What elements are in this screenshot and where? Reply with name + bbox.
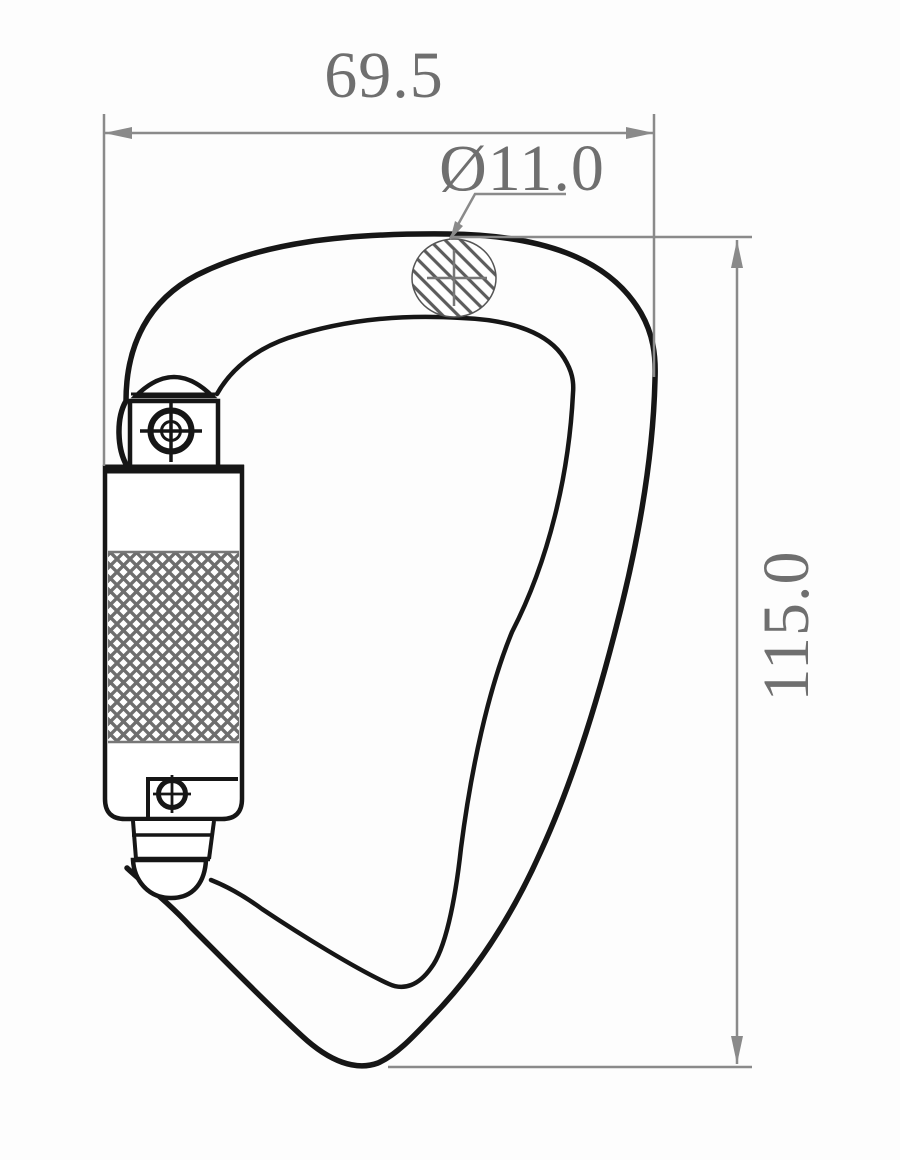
carabiner-drawing-canvas: 69.5 Ø11.0 115.0 <box>0 0 900 1160</box>
gate-collar <box>133 821 214 859</box>
width-dimension-label: 69.5 <box>324 39 444 112</box>
width-arrow-left <box>104 127 132 139</box>
dimension-texts: 69.5 Ø11.0 115.0 <box>324 39 823 702</box>
height-arrow-down <box>731 1036 743 1064</box>
technical-drawing: 69.5 Ø11.0 115.0 <box>0 0 900 1160</box>
width-arrow-right <box>626 127 654 139</box>
knurl-texture <box>108 552 239 742</box>
body-inner-edge <box>211 317 573 987</box>
height-arrow-up <box>731 240 743 268</box>
diameter-dimension-label: Ø11.0 <box>439 132 605 205</box>
height-dimension-label: 115.0 <box>750 550 823 701</box>
cross-section-marker <box>412 239 496 317</box>
gate-nose <box>133 860 206 898</box>
